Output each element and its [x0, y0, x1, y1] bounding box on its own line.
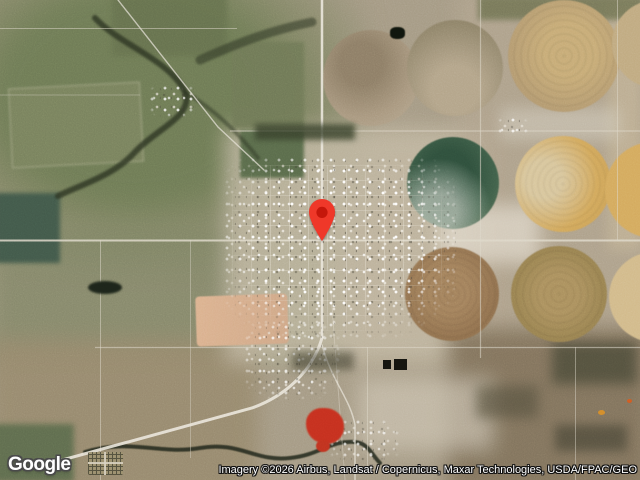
google-logo[interactable]: Google: [8, 454, 70, 476]
location-pin-icon[interactable]: [308, 198, 336, 242]
pin-body: [309, 199, 335, 241]
satellite-map[interactable]: Google Imagery ©2026 Airbus, Landsat / C…: [0, 0, 640, 480]
map-attribution: Imagery ©2026 Airbus, Landsat / Copernic…: [218, 464, 637, 476]
pin-dot: [316, 207, 327, 218]
